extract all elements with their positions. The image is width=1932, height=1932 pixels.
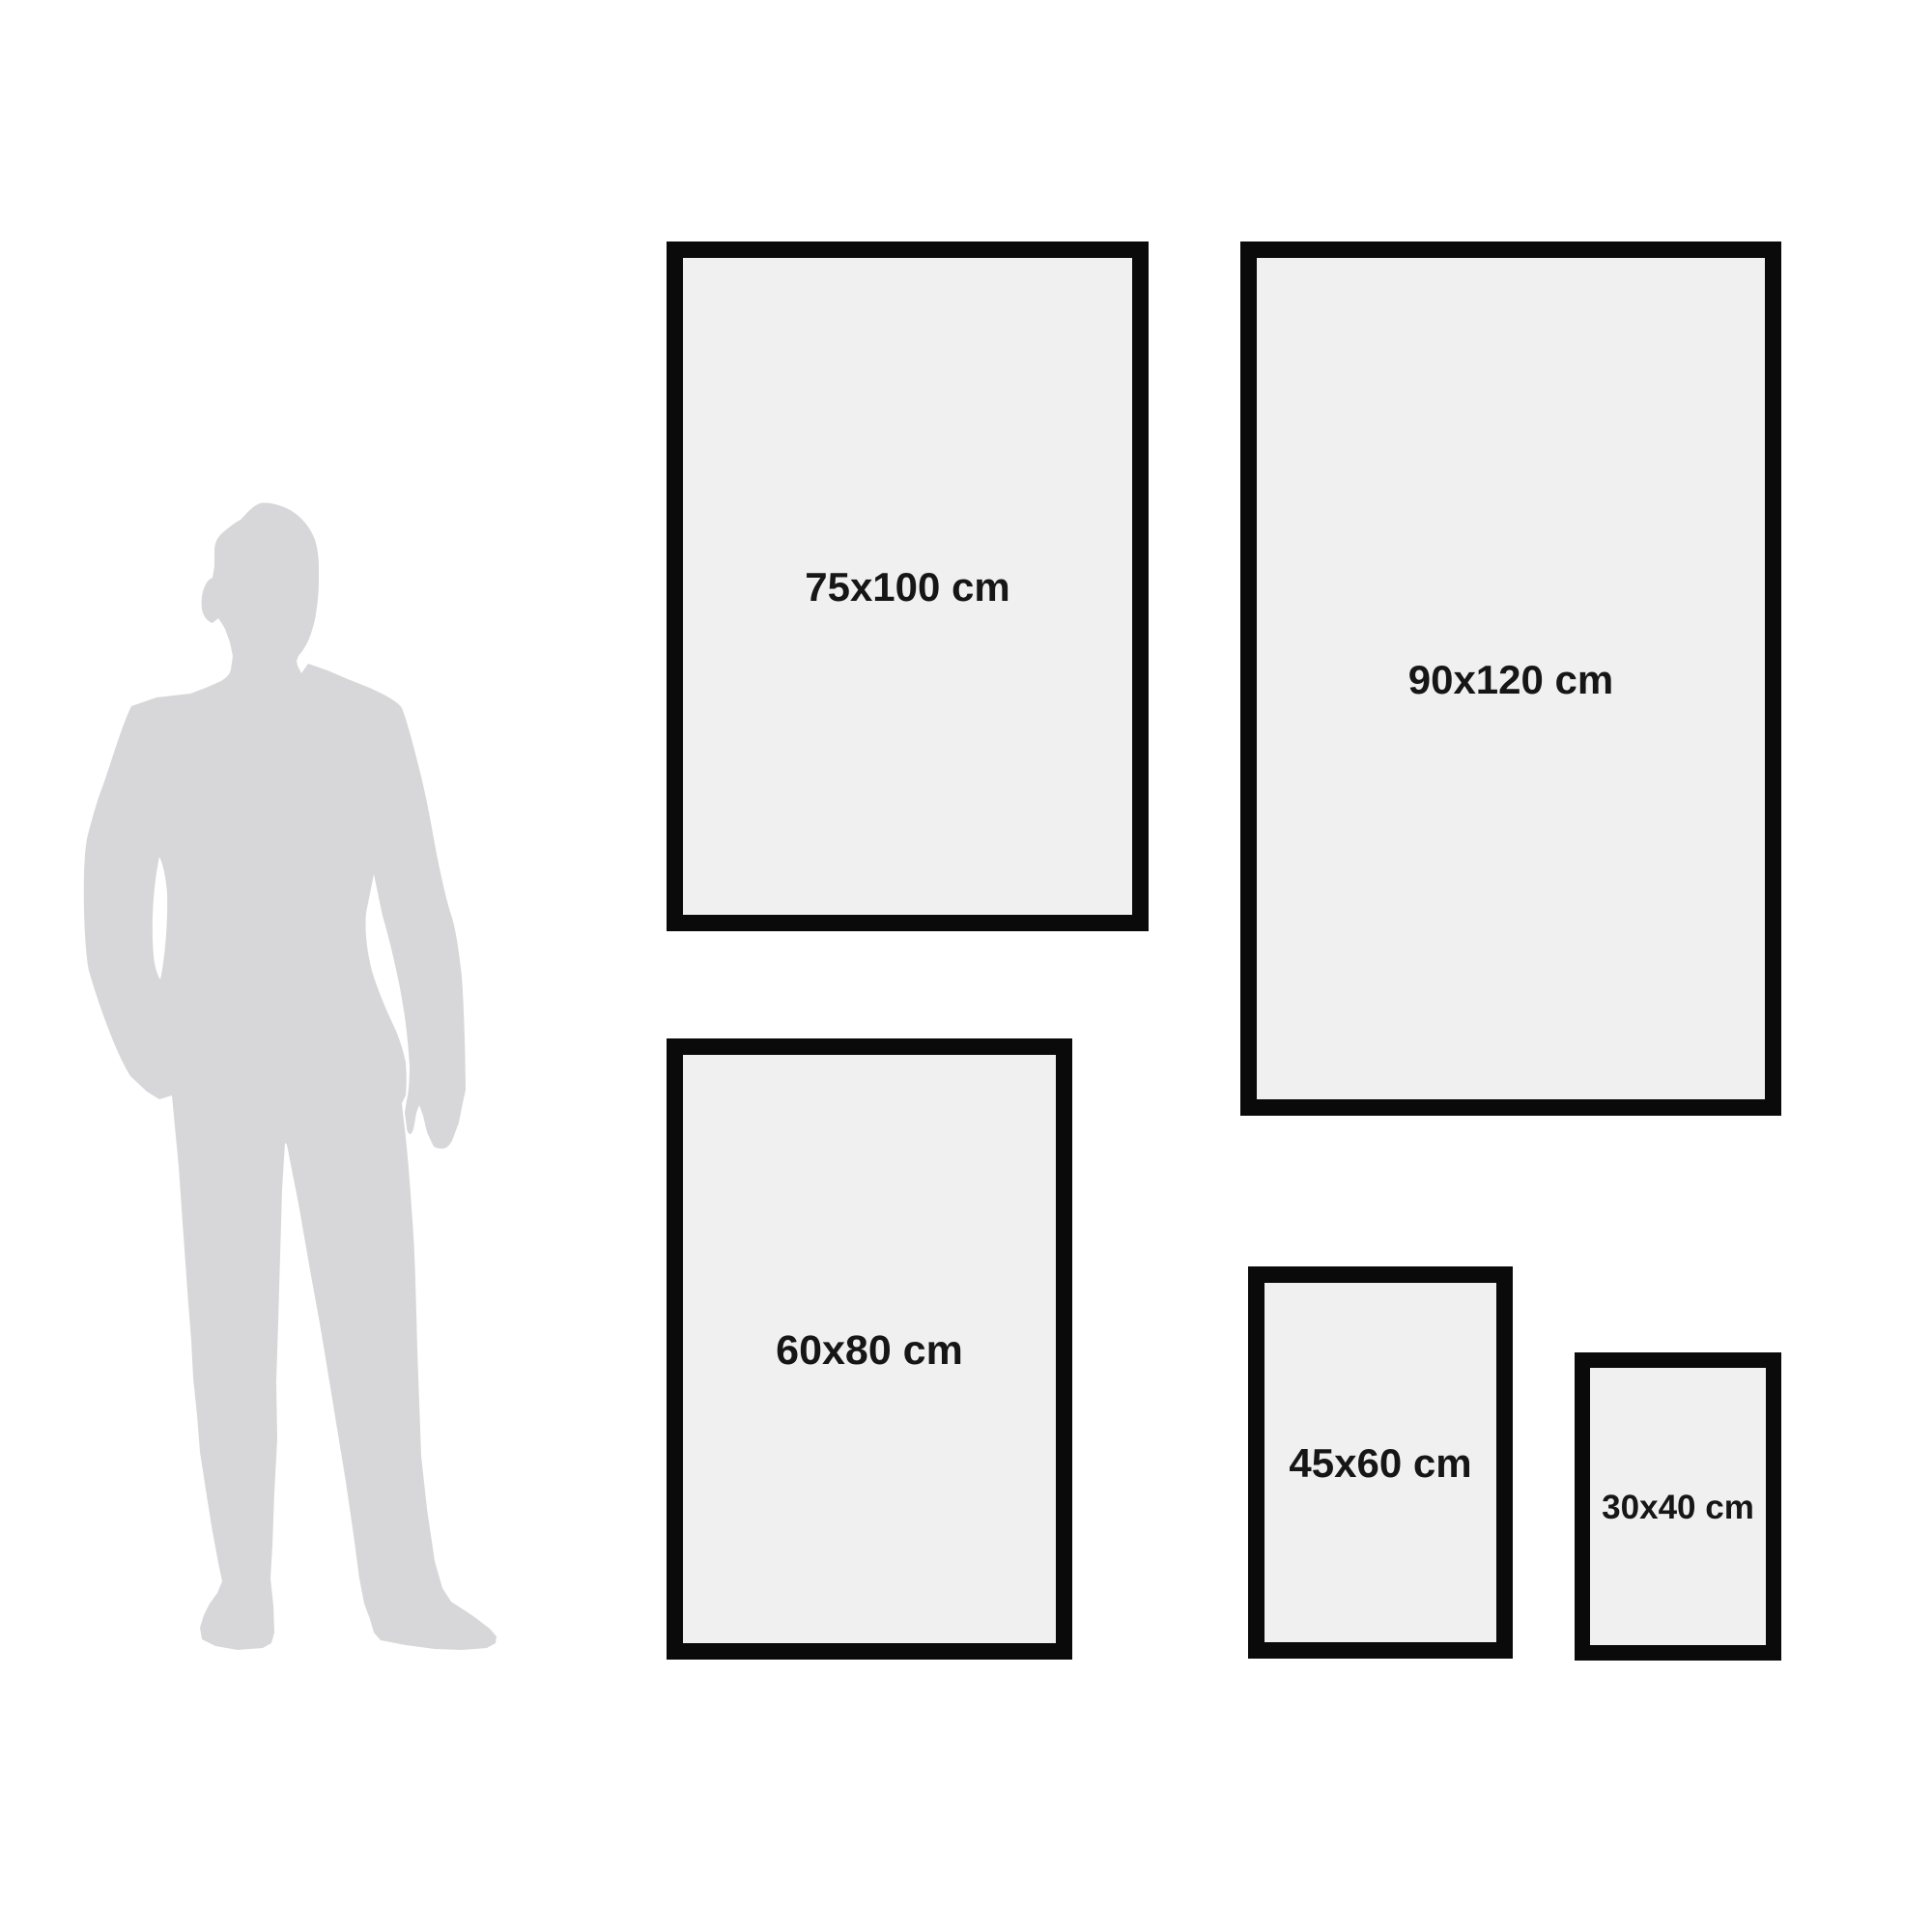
svg-text:75x100 cm: 75x100 cm [805, 564, 1010, 610]
svg-text:45x60 cm: 45x60 cm [1289, 1440, 1471, 1486]
svg-text:60x80 cm: 60x80 cm [776, 1327, 963, 1374]
svg-text:90x120 cm: 90x120 cm [1408, 657, 1614, 702]
svg-text:30x40 cm: 30x40 cm [1602, 1489, 1754, 1526]
